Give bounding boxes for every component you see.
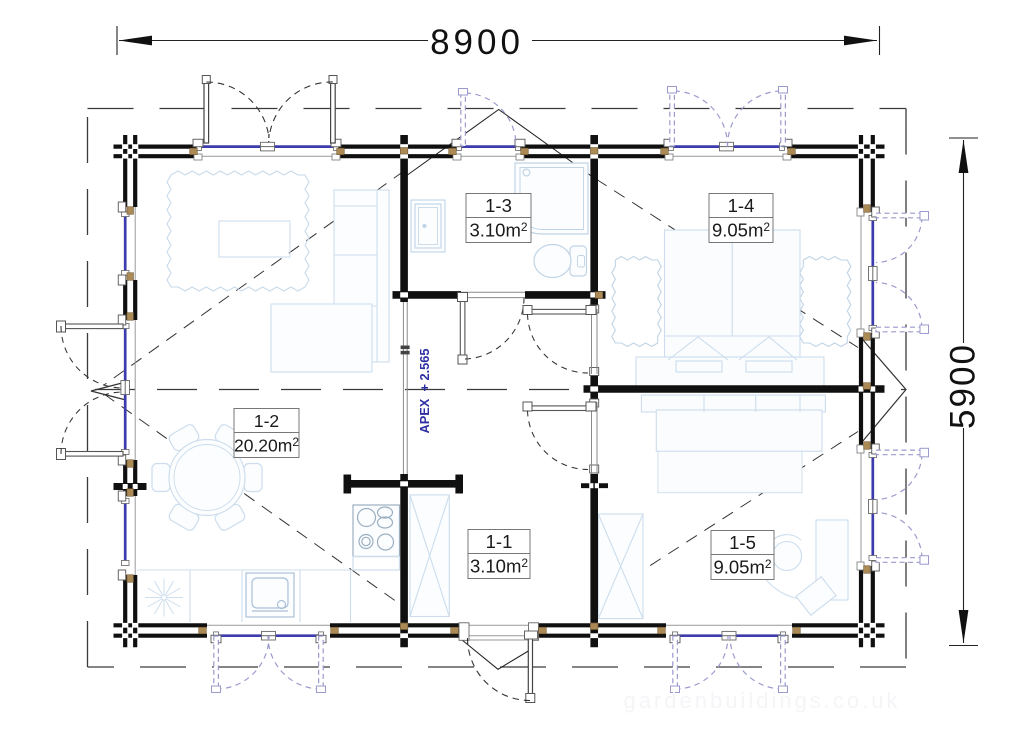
svg-text:20.20m2: 20.20m2 xyxy=(234,435,299,456)
svg-text:1-1: 1-1 xyxy=(486,531,513,552)
svg-text:3.10m2: 3.10m2 xyxy=(469,220,527,241)
svg-text:1-2: 1-2 xyxy=(254,411,279,431)
svg-text:1-4: 1-4 xyxy=(728,195,755,216)
svg-text:5900: 5900 xyxy=(944,343,983,429)
svg-text:8900: 8900 xyxy=(430,23,524,62)
svg-text:9.05m2: 9.05m2 xyxy=(713,557,771,578)
svg-text:APEX + 2.565: APEX + 2.565 xyxy=(417,348,432,433)
svg-text:1-5: 1-5 xyxy=(729,532,756,553)
svg-text:9.05m2: 9.05m2 xyxy=(712,220,770,241)
svg-text:1-3: 1-3 xyxy=(485,195,512,216)
svg-text:gardenbuildings.co.uk: gardenbuildings.co.uk xyxy=(623,688,900,713)
svg-text:3.10m2: 3.10m2 xyxy=(470,556,528,577)
